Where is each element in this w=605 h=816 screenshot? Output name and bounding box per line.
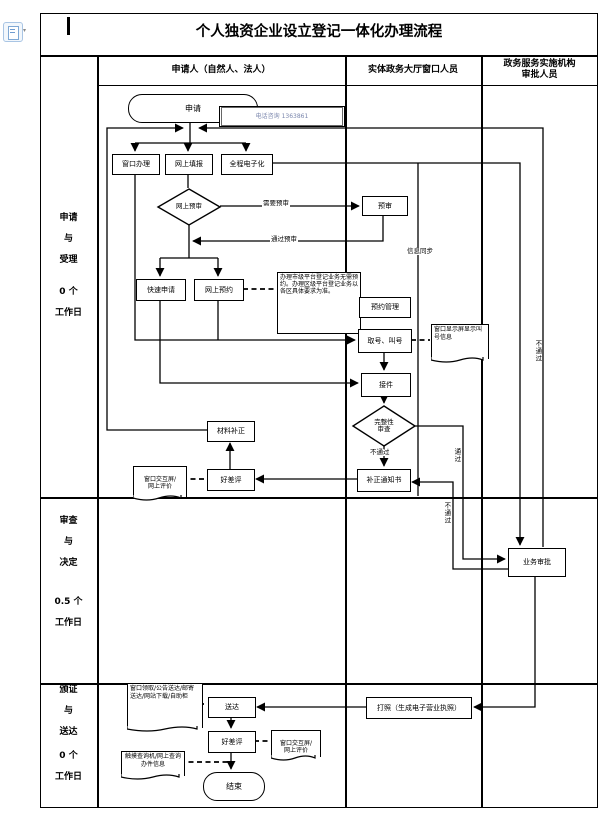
- node-take-number: 取号、叫号: [358, 329, 412, 353]
- node-precheck: 预审: [362, 196, 408, 216]
- doc-wave: [133, 494, 184, 503]
- header-divider: [97, 85, 598, 86]
- stage-issue-duration: 0 个 工作日: [40, 746, 97, 788]
- eval-note-2-text: 窗口交互屏/ 网上评价: [280, 740, 312, 755]
- deliver-note-text: 窗口领取/公告送达/邮寄送达/网站下载/自助柜: [130, 685, 194, 700]
- stage-review-name: 审查 与 决定: [40, 511, 97, 574]
- node-deliver: 送达: [208, 697, 256, 718]
- node-phone-note: 电话咨询 1363861: [219, 106, 345, 127]
- stage-issue-name: 颁证 与 送达: [40, 680, 97, 743]
- edge-label-pass-precheck: 通过预审: [270, 236, 298, 243]
- header-window-staff: 实体政务大厅窗口人员: [345, 55, 481, 85]
- page-title: 个人独资企业设立登记一体化办理流程: [40, 20, 598, 41]
- node-deliver-note: 窗口领取/公告送达/邮寄送达/网站下载/自助柜: [127, 683, 203, 728]
- node-online-booking: 网上预约: [194, 279, 244, 301]
- doc-wave: [431, 356, 486, 365]
- text-cursor-bar: [67, 17, 70, 35]
- dropdown-caret-icon[interactable]: ▾: [23, 27, 26, 34]
- doc-wave: [121, 773, 182, 782]
- edge-label-fail-mid: 不通过: [443, 502, 450, 525]
- stage-apply-name: 申请 与 受理: [40, 208, 97, 271]
- online-precheck-label: 网上预审: [159, 200, 219, 214]
- node-end: 结束: [203, 772, 265, 801]
- paste-options-icon[interactable]: [3, 22, 23, 42]
- query-note-text: 触摸查询机/网上查询办件信息: [125, 753, 181, 768]
- node-booking-mgmt: 预约管理: [359, 297, 411, 318]
- doc-wave: [127, 725, 200, 734]
- stage-column-divider: [97, 55, 99, 808]
- column-divider-2: [481, 55, 483, 808]
- node-eval-note-2: 窗口交互屏/ 网上评价: [271, 730, 321, 757]
- node-correction-notice: 补正通知书: [357, 469, 411, 492]
- edge-label-fail-right: 不通过: [534, 340, 541, 363]
- node-screen-note: 窗口显示屏显示叫号信息: [431, 324, 489, 359]
- edge-label-fail-below-diamond: 不通过: [369, 449, 391, 456]
- header-applicant: 申请人（自然人、法人）: [97, 55, 345, 85]
- node-full-electronic: 全程电子化: [221, 154, 273, 175]
- edge-label-info-sync: 信息同步: [406, 248, 434, 255]
- node-quick-apply: 快速申请: [136, 279, 186, 301]
- table-outer-border: [40, 13, 598, 808]
- node-window-handle: 窗口办理: [112, 154, 160, 175]
- node-receive: 接件: [361, 373, 411, 397]
- node-approval: 业务审批: [508, 548, 566, 577]
- stage-review-duration: 0.5 个 工作日: [40, 592, 97, 634]
- node-online-fill: 网上填报: [165, 154, 213, 175]
- node-print-license: 打照（生成电子营业执照）: [366, 697, 472, 719]
- node-evaluation-2: 好差评: [208, 731, 256, 753]
- phone-note-text: 电话咨询 1363861: [221, 107, 343, 126]
- document-page: ▾ 个人独资企业设立登记一体化办理流程 申请人（自然人、法人） 实体政务大厅窗口…: [0, 0, 605, 816]
- header-agency: 政务服务实施机构 审批人员: [481, 55, 598, 85]
- section-divider-2: [40, 683, 598, 685]
- node-query-note: 触摸查询机/网上查询办件信息: [121, 751, 185, 776]
- node-booking-note: 办理市级平台登记业务无需预约。办理区级平台登记业务以各区具体要求为准。: [277, 272, 361, 334]
- column-divider-1: [345, 55, 347, 808]
- edge-label-pass-vertical: 通过: [453, 448, 460, 463]
- screen-note-text: 窗口显示屏显示叫号信息: [434, 326, 482, 341]
- node-eval-note-1: 窗口交互屏/ 网上评价: [133, 466, 187, 497]
- node-material-correction: 材料补正: [207, 421, 255, 442]
- eval-note-1-text: 窗口交互屏/ 网上评价: [144, 476, 176, 491]
- completeness-check-label: 完整性 审查: [354, 412, 414, 440]
- doc-wave: [271, 754, 318, 763]
- stage-apply-duration: 0 个 工作日: [40, 282, 97, 324]
- edge-label-need-precheck: 需要预审: [262, 200, 290, 207]
- node-evaluation-1: 好差评: [207, 469, 255, 491]
- section-divider-1: [40, 497, 598, 499]
